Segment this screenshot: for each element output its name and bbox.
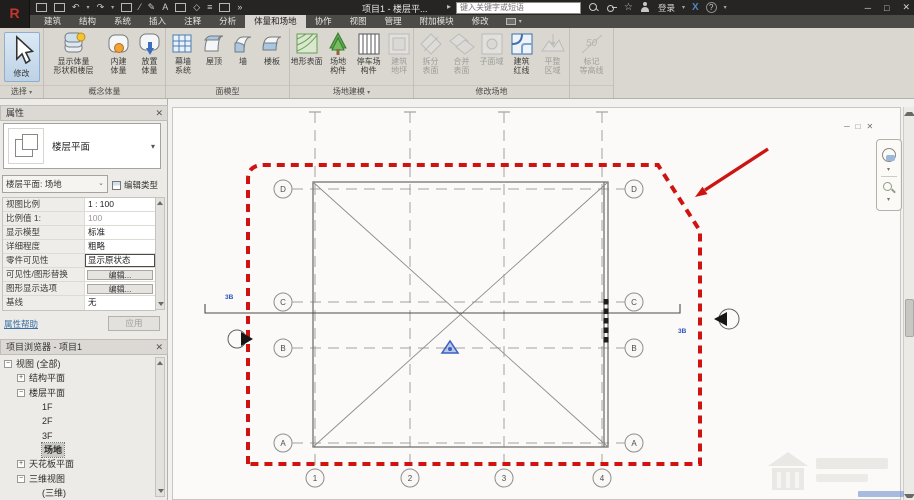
- tree-item-ceiling-plans[interactable]: + 天花板平面: [0, 457, 168, 471]
- show-mass-icon: [61, 31, 87, 57]
- tree-item-1f[interactable]: 1F: [0, 400, 168, 414]
- property-row[interactable]: 视图比例 1 : 100: [3, 198, 155, 212]
- title-caret-icon: ▸: [447, 2, 451, 11]
- site-component-icon: [325, 31, 351, 57]
- left-dock: 属性 ✕ 楼层平面 ▾ 楼层平面: 场地 ⌄ 编辑类型 视图比例 1 : 100: [0, 99, 168, 500]
- svg-text:A: A: [631, 439, 637, 448]
- window-title: 项目1 - 楼层平...: [362, 2, 428, 15]
- close-view-icon[interactable]: ✕: [867, 122, 874, 131]
- help-dropdown-icon[interactable]: ▾: [724, 4, 727, 11]
- place-mass-icon: [137, 31, 163, 57]
- subregion-button: 子面域: [478, 30, 506, 83]
- tab-systems[interactable]: 系统: [105, 15, 140, 28]
- scroll-up-icon[interactable]: [904, 112, 914, 116]
- tab-insert[interactable]: 插入: [140, 15, 175, 28]
- default-3d-view-icon[interactable]: [175, 3, 186, 12]
- subscription-icon[interactable]: [606, 2, 617, 13]
- steering-wheel-icon[interactable]: [882, 148, 896, 162]
- tab-structure[interactable]: 结构: [70, 15, 105, 28]
- merge-surfaces-icon: [449, 31, 475, 57]
- revit-window: ↶▾ ↷▾ ⁄ ✎ A ◇ ≡ » 项目1 - 楼层平... ▸ ☆ 登录 ▾ …: [0, 0, 914, 500]
- svg-text:A: A: [280, 439, 286, 448]
- section-tag-right: 3B: [678, 328, 687, 335]
- property-row[interactable]: 详细程度 粗略: [3, 240, 155, 254]
- panel-annotate-site-label: [570, 85, 613, 98]
- subregion-icon: [479, 31, 505, 57]
- scroll-down-icon[interactable]: [158, 489, 164, 493]
- tab-analyze[interactable]: 分析: [210, 15, 245, 28]
- property-row[interactable]: 零件可见性 显示原状态: [3, 254, 155, 268]
- in-place-mass-button[interactable]: 内建 体量: [104, 30, 134, 83]
- tree-item-views[interactable]: − 视图 (全部): [0, 357, 168, 371]
- svg-text:1: 1: [313, 474, 318, 483]
- search-input[interactable]: [456, 2, 581, 14]
- split-surface-icon: [418, 31, 444, 57]
- tree-item-2f[interactable]: 2F: [0, 414, 168, 428]
- family-type-icon: [8, 128, 44, 164]
- sign-in-dropdown-icon[interactable]: ▾: [682, 4, 685, 11]
- modify-cursor-icon: [5, 33, 39, 67]
- chevron-down-icon: ▾: [519, 18, 522, 25]
- close-hidden-windows-icon[interactable]: [219, 3, 230, 12]
- dimension-icon[interactable]: ✎: [148, 2, 156, 13]
- panel-model-site: 地形表面 场地 构件 停车场: [290, 28, 414, 98]
- account-icon[interactable]: [640, 2, 651, 13]
- house-logo-icon: [768, 452, 808, 490]
- property-row[interactable]: 比例值 1: 100: [3, 212, 155, 226]
- panel-model-by-face: 幕墙 系统 屋顶 墙: [166, 28, 290, 98]
- graded-region-icon: [540, 31, 566, 57]
- chevron-down-icon[interactable]: ▾: [887, 196, 890, 203]
- panel-modify-site: 拆分 表面 合并 表面 子面域: [414, 28, 570, 98]
- properties-scrollbar[interactable]: [155, 197, 165, 310]
- divider: [881, 176, 897, 177]
- panel-model-site-label[interactable]: 场地建模 ▾: [290, 85, 413, 98]
- tab-modify[interactable]: 修改: [463, 15, 498, 28]
- redo-dropdown-icon[interactable]: ▾: [111, 4, 114, 11]
- application-menu-button[interactable]: R: [0, 0, 30, 28]
- undo-dropdown-icon[interactable]: ▾: [87, 4, 90, 11]
- panel-conceptual-mass-label: 概念体量: [44, 85, 165, 98]
- panel-expander-icon[interactable]: ▾: [367, 90, 370, 96]
- minimize-view-icon[interactable]: ─: [844, 122, 850, 131]
- graded-region-button: 平整 区域: [538, 30, 568, 83]
- svg-text:B: B: [280, 344, 285, 353]
- text-icon[interactable]: A: [162, 2, 168, 13]
- undo-icon[interactable]: ↶: [72, 2, 80, 13]
- property-row[interactable]: 基线 无: [3, 296, 155, 310]
- edit-button[interactable]: 编辑...: [87, 270, 153, 280]
- show-mass-button[interactable]: 显示体量 形状和楼层: [45, 30, 103, 83]
- wall-by-face-button[interactable]: 墙: [230, 30, 256, 83]
- chevron-down-icon: ⌄: [98, 176, 104, 192]
- scroll-up-icon[interactable]: [157, 361, 163, 365]
- instance-selector[interactable]: 楼层平面: 场地 ⌄: [2, 175, 108, 193]
- scrollbar-thumb[interactable]: [905, 299, 914, 337]
- measure-icon[interactable]: ⁄: [139, 2, 141, 13]
- panel-modify-site-label: 修改场地: [414, 85, 569, 98]
- svg-text:D: D: [280, 185, 286, 194]
- exchange-apps-icon[interactable]: X: [692, 2, 699, 13]
- svg-text:B: B: [631, 344, 636, 353]
- split-surface-button: 拆分 表面: [416, 30, 446, 83]
- curtain-system-button[interactable]: 幕墙 系统: [168, 30, 198, 83]
- panel-select-label[interactable]: 选择 ▾: [0, 85, 43, 98]
- close-icon[interactable]: ✕: [155, 340, 163, 355]
- tab-collaborate[interactable]: 协作: [306, 15, 341, 28]
- print-icon[interactable]: [121, 3, 132, 12]
- window-controls: ─ □ ✕: [865, 0, 912, 15]
- instance-row: 楼层平面: 场地 ⌄ 编辑类型: [0, 175, 168, 195]
- panel-select: 修改 选择 ▾: [0, 28, 44, 98]
- customize-qat-icon[interactable]: »: [237, 2, 242, 13]
- svg-text:3: 3: [502, 474, 507, 483]
- tree-item-3d[interactable]: (三维): [0, 486, 168, 500]
- section-icon[interactable]: ◇: [193, 2, 200, 13]
- svg-text:D: D: [631, 185, 637, 194]
- section-tag-left: 3B: [225, 294, 234, 301]
- toposurface-icon: [294, 31, 320, 57]
- tab-annotate[interactable]: 注释: [175, 15, 210, 28]
- ribbon: 修改 选择 ▾ 显示体量 形状和楼层: [0, 28, 914, 99]
- curtain-system-icon: [170, 31, 196, 57]
- save-icon[interactable]: [54, 3, 65, 12]
- collapse-icon[interactable]: −: [4, 360, 12, 368]
- site-component-button[interactable]: 场地 构件: [324, 30, 352, 83]
- svg-text:2: 2: [408, 474, 413, 483]
- help-icon[interactable]: ?: [706, 2, 717, 13]
- property-row[interactable]: 图形显示选项 编辑...: [3, 282, 155, 296]
- navigation-bar: ▾ ▾: [876, 139, 902, 211]
- apply-button: 应用: [108, 316, 160, 331]
- label-contours-button: 50 标记 等高线: [572, 30, 612, 83]
- title-bar: ↶▾ ↷▾ ⁄ ✎ A ◇ ≡ » 项目1 - 楼层平... ▸ ☆ 登录 ▾ …: [0, 0, 914, 15]
- tree-item-3f[interactable]: 3F: [0, 428, 168, 442]
- tree-item-site[interactable]: 场地: [0, 443, 168, 457]
- tab-addins[interactable]: 附加模块: [411, 15, 463, 28]
- view-window-controls: ─ □ ✕: [844, 122, 873, 131]
- tab-manage[interactable]: 管理: [376, 15, 411, 28]
- project-browser-scrollbar[interactable]: [155, 357, 165, 497]
- panel-annotate-site: 50 标记 等高线: [570, 28, 614, 98]
- property-row[interactable]: 可见性/图形替换 编辑...: [3, 268, 155, 282]
- building-pad-icon: [386, 31, 412, 57]
- quick-access-toolbar: ↶▾ ↷▾ ⁄ ✎ A ◇ ≡ »: [36, 2, 242, 13]
- watermark-text-block: [816, 458, 888, 469]
- zoom-icon[interactable]: [883, 182, 892, 191]
- properties-footer: 属性帮助 应用: [0, 315, 168, 335]
- wall-by-face-icon: [230, 31, 256, 57]
- properties-help-link[interactable]: 属性帮助: [4, 318, 38, 330]
- tab-architecture[interactable]: 建筑: [35, 15, 70, 28]
- type-selector[interactable]: 楼层平面 ▾: [3, 123, 161, 169]
- panel-conceptual-mass: 显示体量 形状和楼层 内建 体量: [44, 28, 166, 98]
- tree-item-structural-plans[interactable]: + 结构平面: [0, 371, 168, 385]
- edit-type-button[interactable]: 编辑类型: [112, 175, 158, 195]
- redo-icon[interactable]: ↷: [97, 2, 105, 13]
- properties-header[interactable]: 属性 ✕: [0, 105, 168, 121]
- properties-table: 视图比例 1 : 100 比例值 1: 100 显示模型 标准 详细程度 粗略 …: [2, 197, 156, 311]
- search-icon[interactable]: [588, 2, 599, 13]
- maximize-button[interactable]: □: [884, 3, 889, 13]
- tree-item-floor-plans[interactable]: − 楼层平面: [0, 386, 168, 400]
- property-line-button[interactable]: 建筑 红线: [507, 30, 537, 83]
- collapse-icon[interactable]: −: [17, 389, 25, 397]
- drawing-area[interactable]: 3B 3B D C B A D C B A 1 2 3 4: [168, 99, 914, 500]
- svg-text:C: C: [280, 298, 286, 307]
- ribbon-display-icon: [506, 18, 516, 25]
- tree-item-3d-views[interactable]: − 三维视图: [0, 471, 168, 485]
- label-contours-icon: 50: [579, 31, 605, 57]
- site-plan-view[interactable]: 3B 3B D C B A D C B A 1 2 3 4: [168, 99, 914, 500]
- modify-button[interactable]: 修改: [4, 32, 40, 82]
- in-place-mass-icon: [106, 31, 132, 57]
- close-button[interactable]: ✕: [902, 2, 910, 13]
- watermark-text-block: [816, 474, 868, 482]
- property-row[interactable]: 显示模型 标准: [3, 226, 155, 240]
- collapse-icon[interactable]: −: [17, 475, 25, 483]
- vertical-scrollbar[interactable]: [903, 107, 914, 500]
- svg-text:C: C: [631, 298, 637, 307]
- expand-icon[interactable]: +: [17, 374, 25, 382]
- place-mass-button[interactable]: 放置 体量: [135, 30, 165, 83]
- roof-by-face-icon: [201, 31, 227, 57]
- floor-by-face-button[interactable]: 楼板: [257, 30, 287, 83]
- close-icon[interactable]: ✕: [155, 106, 163, 121]
- scroll-down-icon[interactable]: [158, 302, 164, 306]
- minimize-button[interactable]: ─: [865, 3, 871, 13]
- parking-component-icon: [356, 31, 382, 57]
- infocenter-icons: ☆ 登录 ▾ X ? ▾: [588, 1, 727, 14]
- chevron-down-icon: ▾: [29, 90, 32, 96]
- svg-text:50: 50: [586, 38, 598, 49]
- chevron-down-icon[interactable]: ▾: [151, 142, 155, 151]
- open-icon[interactable]: [36, 3, 47, 12]
- building-pad-button: 建筑 地坪: [385, 30, 413, 83]
- svg-text:4: 4: [600, 474, 605, 483]
- property-line-icon: [509, 31, 535, 57]
- project-browser-tree: − 视图 (全部) + 结构平面 − 楼层平面 1F 2F 3F 场地: [0, 357, 168, 500]
- scroll-up-icon[interactable]: [157, 201, 163, 205]
- chevron-down-icon[interactable]: ▾: [887, 166, 890, 173]
- floor-by-face-icon: [259, 31, 285, 57]
- thin-lines-icon[interactable]: ≡: [207, 2, 212, 13]
- cropped-caption-text: [858, 491, 904, 497]
- parking-component-button[interactable]: 停车场 构件: [353, 30, 384, 83]
- sign-in-label[interactable]: 登录: [658, 2, 675, 14]
- ribbon-tab-bar: 建筑 结构 系统 插入 注释 分析 体量和场地 协作 视图 管理 附加模块 修改…: [0, 15, 914, 28]
- restore-view-icon[interactable]: □: [856, 122, 861, 131]
- edit-button[interactable]: 编辑...: [87, 284, 153, 294]
- panel-model-by-face-label: 面模型: [166, 85, 289, 98]
- expand-icon[interactable]: +: [17, 460, 25, 468]
- ribbon-display-toggle[interactable]: ▾: [506, 15, 522, 28]
- tab-view[interactable]: 视图: [341, 15, 376, 28]
- merge-surfaces-button: 合并 表面: [447, 30, 477, 83]
- roof-by-face-button[interactable]: 屋顶: [199, 30, 229, 83]
- edit-type-icon: [112, 181, 121, 190]
- watermark-logo: [748, 444, 908, 496]
- project-browser-header[interactable]: 项目浏览器 - 项目1 ✕: [0, 339, 168, 355]
- toposurface-button[interactable]: 地形表面: [290, 30, 323, 83]
- tab-massing-site[interactable]: 体量和场地: [245, 15, 306, 28]
- favorites-icon[interactable]: ☆: [624, 2, 633, 13]
